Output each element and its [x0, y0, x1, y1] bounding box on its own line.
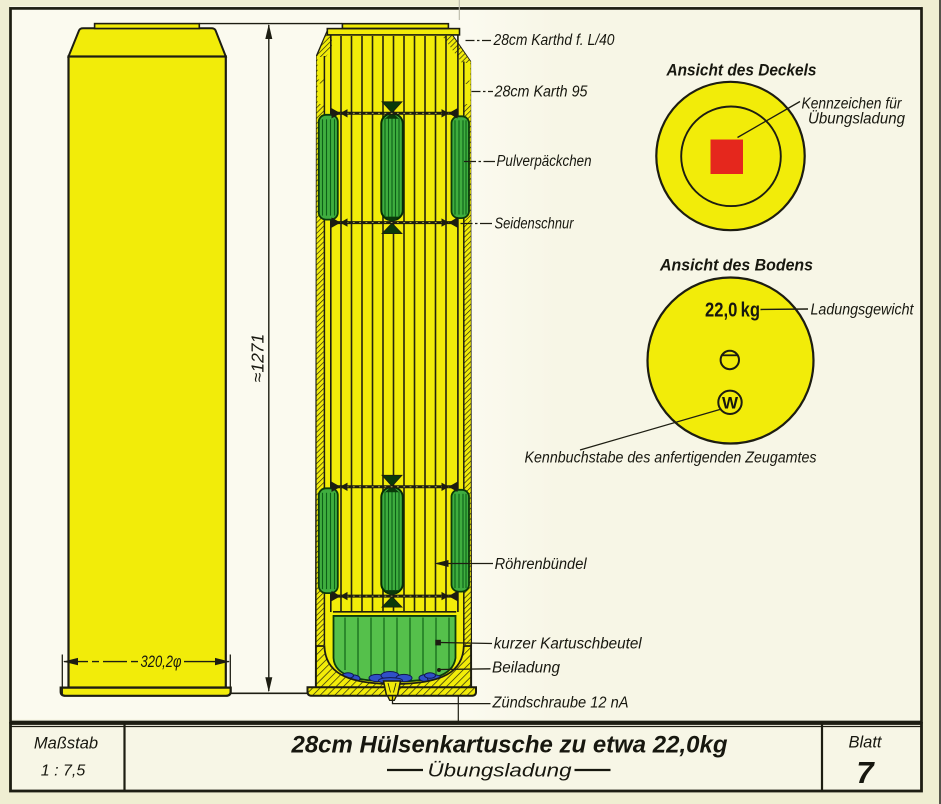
svg-text:Kennbuchstabe des anfertigende: Kennbuchstabe des anfertigenden Zeugamte…	[525, 450, 817, 467]
svg-text:Ladungsgewicht: Ladungsgewicht	[811, 302, 915, 319]
svg-text:320,2φ: 320,2φ	[141, 652, 182, 671]
svg-text:22,0 kg: 22,0 kg	[705, 300, 760, 322]
svg-text:Röhrenbündel: Röhrenbündel	[495, 556, 588, 573]
svg-text:28cm Karthd f. L/40: 28cm Karthd f. L/40	[493, 32, 615, 49]
svg-text:Seidenschnur: Seidenschnur	[495, 216, 575, 233]
svg-text:Übungsladung: Übungsladung	[428, 761, 572, 781]
svg-text:Beiladung: Beiladung	[492, 660, 560, 677]
svg-text:Zündschraube 12 nA: Zündschraube 12 nA	[492, 695, 629, 712]
svg-text:Pulverpäckchen: Pulverpäckchen	[497, 153, 592, 170]
svg-text:1 : 7,5: 1 : 7,5	[41, 763, 86, 780]
svg-text:28cm Hülsenkartusche zu etwa 2: 28cm Hülsenkartusche zu etwa 22,0kg	[291, 732, 728, 759]
svg-text:kurzer Kartuschbeutel: kurzer Kartuschbeutel	[494, 636, 643, 653]
svg-text:≈1271: ≈1271	[248, 334, 268, 383]
svg-text:Übungsladung: Übungsladung	[808, 110, 905, 128]
svg-text:Ansicht des Bodens: Ansicht des Bodens	[659, 256, 813, 275]
svg-text:W: W	[722, 394, 739, 413]
svg-text:Blatt: Blatt	[848, 734, 882, 752]
svg-text:Ansicht des Deckels: Ansicht des Deckels	[666, 61, 817, 80]
svg-text:28cm Karth 95: 28cm Karth 95	[494, 84, 588, 101]
svg-text:7: 7	[856, 755, 875, 790]
svg-text:Maßstab: Maßstab	[34, 735, 98, 753]
